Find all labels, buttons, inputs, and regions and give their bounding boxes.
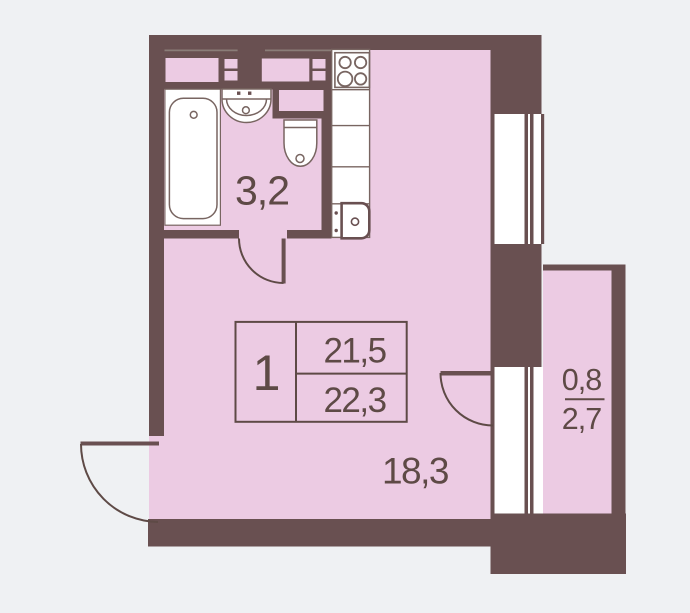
svg-text:21,5: 21,5 — [323, 331, 385, 370]
svg-text:3,2: 3,2 — [235, 168, 289, 214]
svg-text:0,8: 0,8 — [562, 363, 601, 397]
svg-text:22,3: 22,3 — [323, 381, 385, 420]
svg-text:18,3: 18,3 — [382, 451, 448, 492]
svg-text:1: 1 — [253, 345, 281, 401]
svg-text:2,7: 2,7 — [562, 402, 601, 436]
